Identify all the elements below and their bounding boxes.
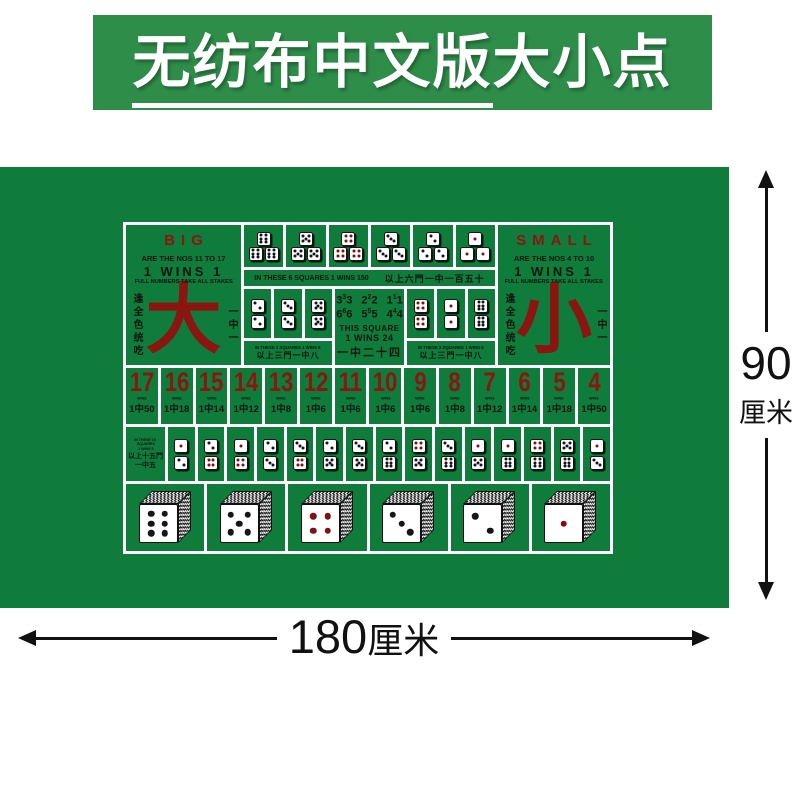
die-pip [212, 446, 215, 449]
double-bet-cell-22 [244, 289, 271, 338]
triple-notation-sup: 6 [342, 308, 346, 315]
triple-notation-444: 444 [387, 308, 403, 322]
die-face-2 [263, 439, 277, 453]
die-pip [315, 249, 318, 252]
combo-bet-cell-2-6 [376, 427, 403, 481]
big-side-text-right: 一中一 [226, 306, 236, 345]
triple-top-die [426, 232, 440, 246]
die-pip [445, 464, 448, 467]
product-title-underlined: 无纺布中文版 [132, 30, 492, 108]
die-pip [533, 442, 536, 445]
die-face-1 [590, 439, 604, 453]
die-face-2 [251, 315, 265, 329]
die-pip [533, 446, 536, 449]
die-face-5 [560, 439, 574, 453]
triple-notation-sup: 2 [368, 294, 372, 301]
combo-bet-cell-1-5 [465, 427, 492, 481]
die-pip [352, 254, 355, 257]
die-pip [474, 464, 477, 467]
doubles-left-caption-en: IN THESE 3 SQUARES 1 WINS 8 [255, 346, 321, 351]
die-pip [595, 444, 598, 447]
die-pip [266, 442, 269, 445]
die-pip [301, 459, 304, 462]
die-pip [420, 458, 423, 461]
die-pip [534, 464, 537, 467]
triple-bet-cell-444 [329, 225, 368, 267]
die-pip [422, 306, 425, 309]
die-pip [301, 447, 304, 450]
die-pip [294, 255, 297, 258]
arrow-down-icon [758, 582, 774, 600]
die-pip [336, 250, 339, 253]
die-pip [314, 323, 317, 326]
die-pip [449, 464, 452, 467]
total-number: 13 [269, 368, 294, 398]
die-pip [325, 513, 332, 520]
wins-label: WINS [346, 397, 355, 401]
die-pip [400, 255, 403, 258]
die-pip [227, 512, 234, 519]
height-label: 90 厘米 [739, 340, 793, 430]
die-face-4 [414, 315, 428, 329]
die-pip [417, 306, 420, 309]
die-pip [227, 529, 234, 536]
double-bet-cell-33 [274, 289, 301, 338]
small-hanzi-block: 逢全色统吃 小 一中一 [498, 285, 610, 365]
die-pip [478, 307, 481, 310]
triples-caption: IN THESE 6 SQUARES 1 WINS 150 以上六門一中一百五十 [244, 270, 495, 286]
die-pip [207, 442, 210, 445]
single-die-bet-cell-6 [126, 484, 204, 551]
die-pip [357, 250, 360, 253]
die-front-face [139, 504, 178, 543]
die-pip [437, 250, 440, 253]
die-pip [245, 529, 252, 536]
die-face-4 [234, 456, 248, 470]
die-face-4 [414, 299, 428, 313]
combo-bet-cell-3-4 [287, 427, 314, 481]
die-face-6 [474, 299, 488, 313]
die-face-5 [352, 456, 366, 470]
total-odds: 1中8 [271, 401, 291, 415]
wins-label: WINS [311, 397, 320, 401]
die-pip [568, 441, 571, 444]
triple-notation-sup: 1 [393, 294, 397, 301]
width-dimension: 180 厘米 [18, 613, 710, 663]
wins-label: WINS [381, 397, 390, 401]
die-face-4 [204, 456, 218, 470]
arrow-up-icon [758, 170, 774, 188]
small-hanzi: 小 [516, 287, 592, 355]
wins-label: WINS [137, 397, 146, 401]
big-hanzi: 大 [146, 287, 222, 355]
height-unit: 厘米 [739, 391, 793, 430]
dimension-line [36, 637, 277, 640]
doubles-right-caption: IN THESE 3 SQUARES 1 WINS 8 以上三門一中八 [407, 341, 495, 365]
die-face-3 [376, 247, 390, 261]
die-face-3 [441, 439, 455, 453]
total-odds: 1中50 [129, 401, 154, 415]
die-face-4 [530, 439, 544, 453]
specific-triples-row [244, 225, 495, 267]
die-pip [161, 511, 168, 518]
die-face-1 [471, 439, 485, 453]
die-front-face [382, 504, 421, 543]
triple-top-die [384, 232, 398, 246]
die-face-6 [382, 456, 396, 470]
total-odds: 1中12 [477, 401, 502, 415]
die-pip [472, 513, 479, 520]
total-odds: 1中50 [581, 401, 606, 415]
die-face-2 [434, 247, 448, 261]
die-face-3 [281, 315, 295, 329]
die-pip [180, 444, 183, 447]
die-pip [357, 254, 360, 257]
die-face-1 [174, 439, 188, 453]
die-pip [264, 240, 267, 243]
die-face-2 [418, 247, 432, 261]
die-pip [426, 254, 429, 257]
die-pip [504, 464, 507, 467]
die-pip [320, 307, 323, 310]
top-row: BIG ARE THE NOS 11 TO 17 1 WINS 1 FULL N… [126, 225, 610, 365]
total-bet-cell-12: 12WINS1中6 [300, 368, 332, 424]
die-pip [384, 255, 387, 258]
total-number: 14 [234, 368, 259, 398]
die-face-6 [265, 247, 279, 261]
two-dice-combo-row: IN THESE 15SQUARES1 WINS 5以上十五門一中五 [126, 427, 610, 481]
die-pip [390, 464, 393, 467]
die-pip [237, 463, 240, 466]
big-bet-area: BIG ARE THE NOS 11 TO 17 1 WINS 1 FULL N… [126, 225, 241, 365]
dimension-line [765, 188, 768, 332]
die-pip [336, 254, 339, 257]
combo-bet-cell-2-4 [198, 427, 225, 481]
product-title-rest: 大小点 [493, 30, 673, 95]
total-number: 8 [449, 368, 461, 398]
total-number: 17 [130, 368, 155, 398]
total-odds: 1中18 [547, 401, 572, 415]
die-pip [538, 442, 541, 445]
die-pip [299, 249, 302, 252]
triple-top-die [257, 232, 271, 246]
total-bet-cell-11: 11WINS1中6 [335, 368, 367, 424]
width-value: 180 [289, 613, 367, 660]
triple-top-die [341, 232, 355, 246]
triple-bet-cell-666 [244, 225, 283, 267]
die-face-5 [291, 247, 305, 261]
small-wins-text: 1 WINS 1 [514, 264, 594, 279]
die-pip [561, 520, 568, 527]
total-number: 5 [553, 368, 565, 398]
product-title: 无纺布中文版大小点 [132, 34, 672, 92]
die-pip [302, 240, 305, 243]
die-pip [482, 252, 485, 255]
single-die-bet-cell-4 [288, 484, 366, 551]
triple-bet-cell-222 [413, 225, 452, 267]
wins-label: WINS [450, 397, 459, 401]
die-face-5 [307, 247, 321, 261]
combo-bet-cell-3-6 [435, 427, 462, 481]
die-pip [296, 459, 299, 462]
any-triple-combos: 333222111666555444 [336, 294, 402, 323]
small-side-text-right: 一中一 [595, 306, 605, 345]
die-face-5 [299, 232, 313, 246]
total-bet-cell-14: 14WINS1中12 [230, 368, 262, 424]
die-face-4 [349, 247, 363, 261]
die-face-6 [257, 232, 271, 246]
die-pip [385, 442, 388, 445]
die-pip [398, 520, 405, 527]
die-pip [474, 237, 477, 240]
total-odds: 1中12 [234, 401, 259, 415]
combo-bet-cell-1-4 [227, 427, 254, 481]
product-image: 无纺布中文版大小点 BIG ARE THE NOS 11 TO 17 1 WIN… [0, 0, 800, 800]
die-pip [272, 464, 275, 467]
total-odds: 1中6 [410, 401, 430, 415]
die-face-6 [249, 247, 263, 261]
die-pip [315, 255, 318, 258]
die-face-3 [590, 456, 604, 470]
arrow-left-icon [18, 630, 36, 646]
triples-caption-en: IN THESE 6 SQUARES 1 WINS 150 [254, 275, 368, 282]
die-pip [325, 464, 328, 467]
combo-bet-cell-2-3 [257, 427, 284, 481]
die-pip [320, 323, 323, 326]
die-face-1 [444, 315, 458, 329]
total-odds: 1中18 [164, 401, 189, 415]
doubles-left-cells [244, 289, 332, 338]
die-pip [242, 459, 245, 462]
any-triple-row: 666555444 [336, 308, 402, 322]
wins-label: WINS [520, 397, 529, 401]
die-face-1 [468, 232, 482, 246]
die-pip [310, 255, 313, 258]
die-pip [236, 520, 243, 527]
die-face-3 [281, 299, 295, 313]
die-pip [355, 464, 358, 467]
total-number: 15 [199, 368, 224, 398]
total-number: 7 [484, 368, 496, 398]
die-face-5 [311, 299, 325, 313]
die-pip [508, 464, 511, 467]
die-pip [310, 528, 317, 535]
die-pip [479, 464, 482, 467]
die-pip [414, 464, 417, 467]
die-pip [320, 317, 323, 320]
die-pip [563, 447, 566, 450]
total-number: 12 [303, 368, 328, 398]
die-face-4 [341, 232, 355, 246]
die-pip [289, 323, 292, 326]
die-pip [325, 528, 332, 535]
combo-bet-cell-1-2 [168, 427, 195, 481]
die-face-1 [234, 439, 248, 453]
die-pip [417, 322, 420, 325]
total-odds: 1中6 [306, 401, 326, 415]
die-face-5 [323, 456, 337, 470]
big-die-5 [220, 491, 273, 544]
triple-bottom-dice [418, 247, 448, 261]
small-side-text-left: 逢全色统吃 [503, 293, 513, 358]
betting-layout: BIG ARE THE NOS 11 TO 17 1 WINS 1 FULL N… [123, 222, 613, 554]
big-wins-text: 1 WINS 1 [144, 264, 224, 279]
total-number: 6 [518, 368, 530, 398]
height-dimension: 90 厘米 [737, 170, 795, 600]
total-bet-cell-17: 17WINS1中50 [126, 368, 158, 424]
combo-bet-cell-1-6 [494, 427, 521, 481]
combo-bet-cell-3-5 [346, 427, 373, 481]
big-die-3 [382, 491, 435, 544]
double-bet-cell-66 [468, 289, 495, 338]
total-bet-cell-6: 6WINS1中14 [509, 368, 541, 424]
die-pip [344, 235, 347, 238]
triple-bottom-dice [291, 247, 321, 261]
die-face-3 [392, 247, 406, 261]
big-die-1 [544, 491, 597, 544]
die-pip [349, 235, 352, 238]
die-face-2 [323, 439, 337, 453]
triple-bottom-dice [460, 247, 490, 261]
die-face-5 [311, 315, 325, 329]
triple-notation-333: 333 [336, 294, 352, 308]
die-face-2 [174, 456, 188, 470]
die-pip [207, 463, 210, 466]
die-face-5 [471, 456, 485, 470]
triples-caption-zh: 以上六門一中一百五十 [385, 272, 485, 285]
die-pip [320, 301, 323, 304]
die-pip [245, 512, 252, 519]
single-die-bet-cell-1 [532, 484, 610, 551]
total-odds: 1中14 [199, 401, 224, 415]
any-triple-row: 333222111 [336, 294, 402, 308]
die-pip [479, 458, 482, 461]
die-pip [254, 302, 257, 305]
die-pip [361, 464, 364, 467]
doubles-right-cells [407, 289, 495, 338]
die-pip [449, 320, 452, 323]
big-full-text: FULL NUMBERS TAKE ALL STAKES [134, 279, 232, 285]
wins-label: WINS [276, 397, 285, 401]
die-pip [361, 447, 364, 450]
die-pip [506, 444, 509, 447]
total-bet-cell-15: 15WINS1中14 [196, 368, 228, 424]
triple-bottom-dice [376, 247, 406, 261]
dimension-line [765, 438, 768, 582]
any-triple-area: 333222111666555444 THIS SQUARE 1 WINS 24… [335, 289, 404, 365]
die-pip [212, 459, 215, 462]
combo-bet-cell-5-6 [554, 427, 581, 481]
die-face-6 [474, 315, 488, 329]
total-bet-cell-9: 9WINS1中6 [404, 368, 436, 424]
small-label: SMALL [510, 233, 598, 248]
single-die-bet-cell-3 [370, 484, 448, 551]
combo-bet-cell-1-3 [583, 427, 610, 481]
triple-notation-sup: 4 [393, 308, 397, 315]
die-pip [450, 447, 453, 450]
die-pip [389, 511, 396, 518]
die-pip [478, 323, 481, 326]
triple-notation-sup: 3 [342, 294, 346, 301]
die-pip [344, 239, 347, 242]
double-bet-cell-55 [305, 289, 332, 338]
combo-label-en: SQUARES [137, 443, 155, 447]
die-pip [331, 446, 334, 449]
die-pip [207, 459, 210, 462]
die-face-3 [263, 456, 277, 470]
die-face-6 [530, 456, 544, 470]
die-pip [422, 322, 425, 325]
width-label: 180 厘米 [289, 612, 439, 664]
triple-notation-222: 222 [361, 294, 377, 308]
any-triple-line2: 1 WINS 24 [345, 333, 393, 343]
triple-notation-sup: 5 [368, 308, 372, 315]
die-pip [331, 458, 334, 461]
die-pip [256, 255, 259, 258]
die-pip [307, 234, 310, 237]
die-face-2 [426, 232, 440, 246]
die-pip [422, 318, 425, 321]
die-pip [259, 306, 262, 309]
triple-top-die [468, 232, 482, 246]
triple-top-die [299, 232, 313, 246]
die-pip [352, 250, 355, 253]
die-pip [307, 240, 310, 243]
die-pip [314, 307, 317, 310]
die-pip [385, 464, 388, 467]
combo-label-zh: 以上十五門 [128, 452, 163, 461]
die-pip [272, 255, 275, 258]
die-pip [161, 520, 168, 527]
single-die-bet-cell-5 [207, 484, 285, 551]
die-pip [390, 446, 393, 449]
doubles-right-group: IN THESE 3 SQUARES 1 WINS 8 以上三門一中八 [407, 289, 495, 365]
wins-label: WINS [589, 397, 598, 401]
total-bet-cell-5: 5WINS1中18 [543, 368, 575, 424]
die-pip [538, 446, 541, 449]
die-pip [259, 322, 262, 325]
small-full-text: FULL NUMBERS TAKE ALL STAKES [505, 279, 603, 285]
die-face-3 [293, 439, 307, 453]
die-pip [421, 250, 424, 253]
die-face-2 [251, 299, 265, 313]
total-bet-cell-7: 7WINS1中12 [474, 368, 506, 424]
big-die-4 [301, 491, 354, 544]
die-pip [429, 235, 432, 238]
total-number: 9 [414, 368, 426, 398]
totals-row: 17WINS1中5016WINS1中1815WINS1中1414WINS1中12… [126, 368, 610, 424]
die-pip [301, 463, 304, 466]
combo-label-en: 1 WINS 5 [138, 448, 153, 452]
die-face-6 [501, 456, 515, 470]
dimension-line [451, 637, 692, 640]
die-face-3 [352, 439, 366, 453]
double-bet-cell-44 [407, 289, 434, 338]
wins-label: WINS [415, 397, 424, 401]
doubles-right-caption-en: IN THESE 3 SQUARES 1 WINS 8 [418, 346, 484, 351]
sicbo-mat: BIG ARE THE NOS 11 TO 17 1 WINS 1 FULL N… [0, 167, 729, 608]
die-pip [177, 459, 180, 462]
die-pip [161, 530, 168, 537]
die-pip [361, 458, 364, 461]
triple-bet-cell-555 [286, 225, 325, 267]
die-front-face [301, 504, 340, 543]
total-odds: 1中6 [375, 401, 395, 415]
small-bet-area: SMALL ARE THE NOS 4 TO 10 1 WINS 1 FULL … [498, 225, 610, 365]
single-number-dice-row [126, 484, 610, 551]
die-face-1 [460, 247, 474, 261]
die-pip [598, 464, 601, 467]
